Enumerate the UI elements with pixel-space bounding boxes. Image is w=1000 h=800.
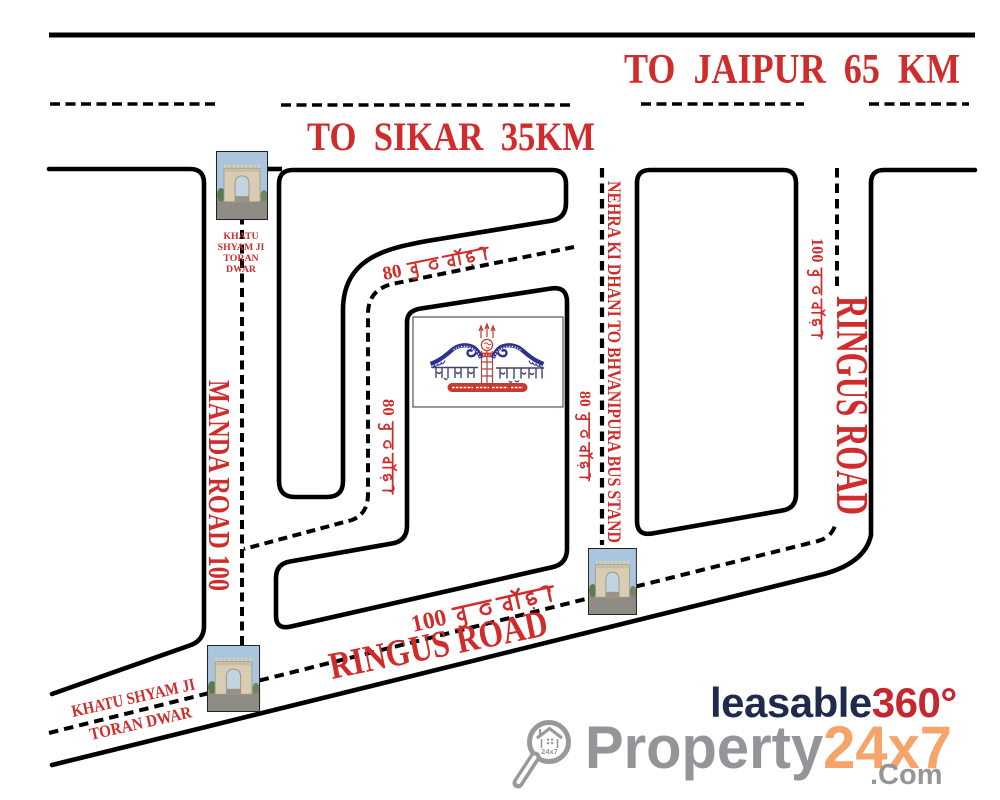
svg-text:KHATU: KHATU (223, 231, 258, 242)
svg-text:TO JAIPUR 65 KM: TO JAIPUR 65 KM (624, 47, 960, 93)
svg-text:TORAN: TORAN (223, 253, 258, 264)
svg-text:MANDA ROAD 100: MANDA ROAD 100 (202, 380, 237, 591)
svg-text:.Com: .Com (870, 759, 943, 791)
svg-text:24x7: 24x7 (541, 747, 558, 756)
svg-text:100: 100 (808, 238, 827, 263)
svg-text:80: 80 (379, 399, 398, 416)
svg-text:SHYAM JI: SHYAM JI (218, 242, 265, 253)
svg-text:NEHRA KI DHANI TO BHVANIPURA B: NEHRA KI DHANI TO BHVANIPURA BUS STAND (603, 181, 624, 543)
svg-text:80: 80 (576, 391, 593, 407)
svg-text:DWAR: DWAR (226, 264, 257, 275)
svg-text:TO SIKAR 35KM: TO SIKAR 35KM (307, 114, 595, 159)
svg-text:RINGUS ROAD: RINGUS ROAD (827, 296, 877, 515)
